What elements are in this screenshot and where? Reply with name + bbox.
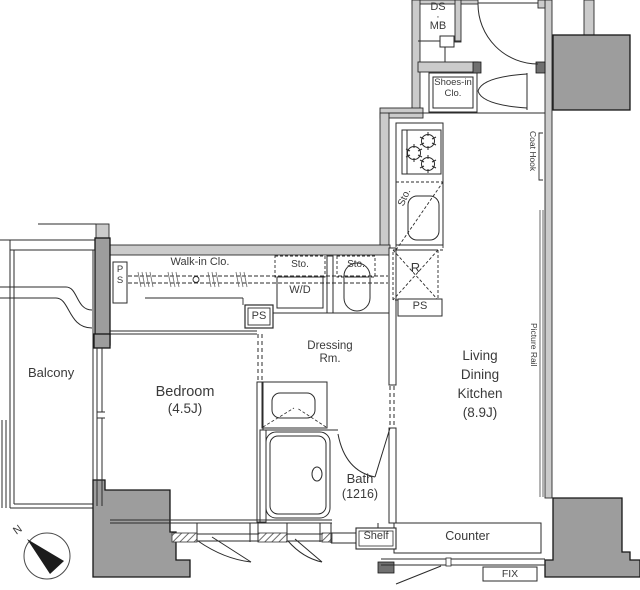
storage-wd-label: Sto. — [275, 259, 325, 271]
pipe-space-kitchen-label: PS — [398, 300, 442, 313]
bath-label: Bath (1216) — [326, 472, 394, 501]
refrigerator-label: R — [393, 261, 438, 276]
floor-plan: DS · MB Shoes-in Clo. Coat Hook Picture … — [0, 0, 640, 590]
picture-rail-line — [540, 210, 543, 497]
storage-toilet-label: Sto. — [337, 259, 375, 271]
shoes-closet-doors — [478, 73, 527, 110]
walkin-closet-label: Walk-in Clo. — [150, 256, 250, 269]
bedroom-label: Bedroom (4.5J) — [133, 384, 237, 416]
stove-burners-icon — [402, 130, 441, 174]
dressing-room-label: Dressing Rm. — [293, 340, 367, 366]
sliding-door-bedroom — [258, 334, 262, 382]
shelf-label: Shelf — [356, 530, 396, 543]
north-compass-icon — [24, 533, 70, 579]
kitchen-sink-icon — [408, 196, 439, 240]
hanger-rail — [128, 272, 388, 287]
washer-dryer-label: W/D — [277, 284, 323, 297]
kitchen-counter-outline — [396, 123, 443, 245]
balcony-label: Balcony — [28, 366, 74, 381]
pipe-space-left-label: P S — [113, 264, 127, 287]
ldk-label: Living Dining Kitchen (8.9J) — [428, 347, 532, 423]
counter-label: Counter — [394, 529, 541, 543]
coat-hook-bracket — [539, 133, 543, 180]
bath-door-swing — [338, 428, 390, 477]
coat-hook-label: Coat Hook — [527, 131, 537, 191]
washbasin-icon — [262, 382, 327, 428]
bedroom-top-wall — [110, 331, 257, 334]
fix-label: FIX — [483, 568, 537, 580]
pipe-space-mid-label: PS — [245, 310, 273, 323]
meter-box-outline — [418, 36, 461, 62]
duct-space-meter-box-label: DS · MB — [421, 1, 455, 33]
door-jambs — [378, 62, 545, 573]
shoes-closet-label: Shoes-in Clo. — [429, 78, 477, 100]
sliding-door-ldk — [390, 386, 394, 428]
